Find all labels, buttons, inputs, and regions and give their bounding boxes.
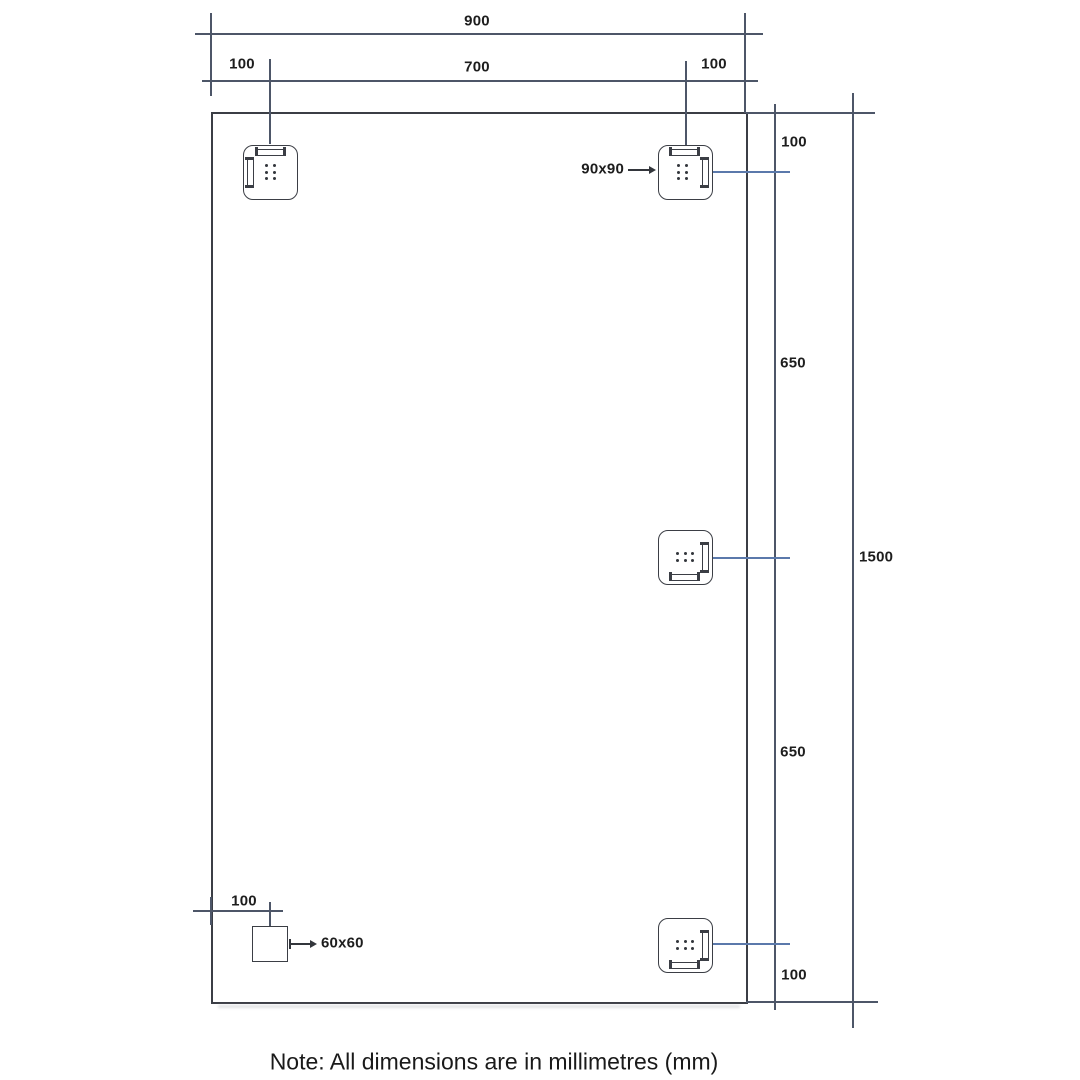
demister-block-outline bbox=[252, 926, 288, 962]
units-note: Note: All dimensions are in millimetres … bbox=[270, 1049, 719, 1076]
dim-label-top-offset-left: 100 bbox=[229, 56, 255, 73]
dim-label-bottom-left-offset: 100 bbox=[231, 893, 257, 910]
bracket-side-slot bbox=[702, 542, 709, 573]
dim-label-right-offset-top: 100 bbox=[781, 134, 807, 151]
extension-line-mirror-top bbox=[746, 112, 875, 114]
leader-line-bracket-top-left bbox=[269, 59, 271, 144]
bracket-rail-slot bbox=[669, 962, 700, 969]
dim-line-top-segments bbox=[202, 80, 758, 82]
extension-line-top-left bbox=[210, 13, 212, 96]
leader-line-bracket-top-right bbox=[685, 61, 687, 145]
extension-line-mirror-bottom bbox=[746, 1001, 878, 1003]
technical-drawing-canvas: 900 100 700 100 100 650 1500 650 100 90x… bbox=[0, 0, 1080, 1080]
bracket-screw-holes bbox=[677, 164, 688, 180]
dim-label-overall-width: 900 bbox=[464, 13, 490, 30]
bracket-side-slot bbox=[702, 157, 709, 188]
overall-height-dimension-line bbox=[852, 93, 854, 1028]
bracket-size-leader-line bbox=[628, 169, 650, 171]
bracket-rail-slot bbox=[669, 149, 700, 156]
dim-label-top-center-span: 700 bbox=[464, 59, 490, 76]
bracket-screw-holes bbox=[676, 940, 694, 950]
tick-bottom-left-edge bbox=[210, 897, 212, 925]
dim-label-overall-height: 1500 bbox=[859, 549, 893, 566]
extension-line-top-right bbox=[744, 13, 746, 113]
bracket-screw-holes bbox=[676, 552, 694, 562]
block-size-arrowhead-icon bbox=[310, 940, 317, 948]
block-size-leader-line bbox=[290, 943, 311, 945]
bracket-size-arrowhead-icon bbox=[649, 166, 656, 174]
bracket-side-slot bbox=[247, 157, 254, 188]
bracket-size-label: 90x90 bbox=[581, 161, 624, 178]
mounting-bracket-top-right bbox=[658, 145, 713, 200]
mirror-drop-shadow bbox=[218, 1005, 740, 1008]
dim-label-top-offset-right: 100 bbox=[701, 56, 727, 73]
dim-label-right-span-lower: 650 bbox=[780, 744, 806, 761]
bracket-rail-slot bbox=[669, 574, 700, 581]
dim-label-right-offset-bottom: 100 bbox=[781, 967, 807, 984]
dim-line-overall-width bbox=[195, 33, 763, 35]
dim-line-bracket-top-right-center bbox=[712, 171, 790, 173]
mounting-bracket-top-left bbox=[243, 145, 298, 200]
dim-line-bracket-middle-center bbox=[712, 557, 790, 559]
block-size-label: 60x60 bbox=[321, 935, 364, 952]
mounting-bracket-middle bbox=[658, 530, 713, 585]
bracket-side-slot bbox=[702, 930, 709, 961]
mounting-bracket-bottom bbox=[658, 918, 713, 973]
bracket-screw-holes bbox=[265, 164, 276, 180]
leader-line-block-center bbox=[269, 902, 271, 927]
dim-line-bracket-bottom-center bbox=[712, 943, 790, 945]
bracket-rail-slot bbox=[255, 149, 286, 156]
dim-label-right-span-upper: 650 bbox=[780, 355, 806, 372]
